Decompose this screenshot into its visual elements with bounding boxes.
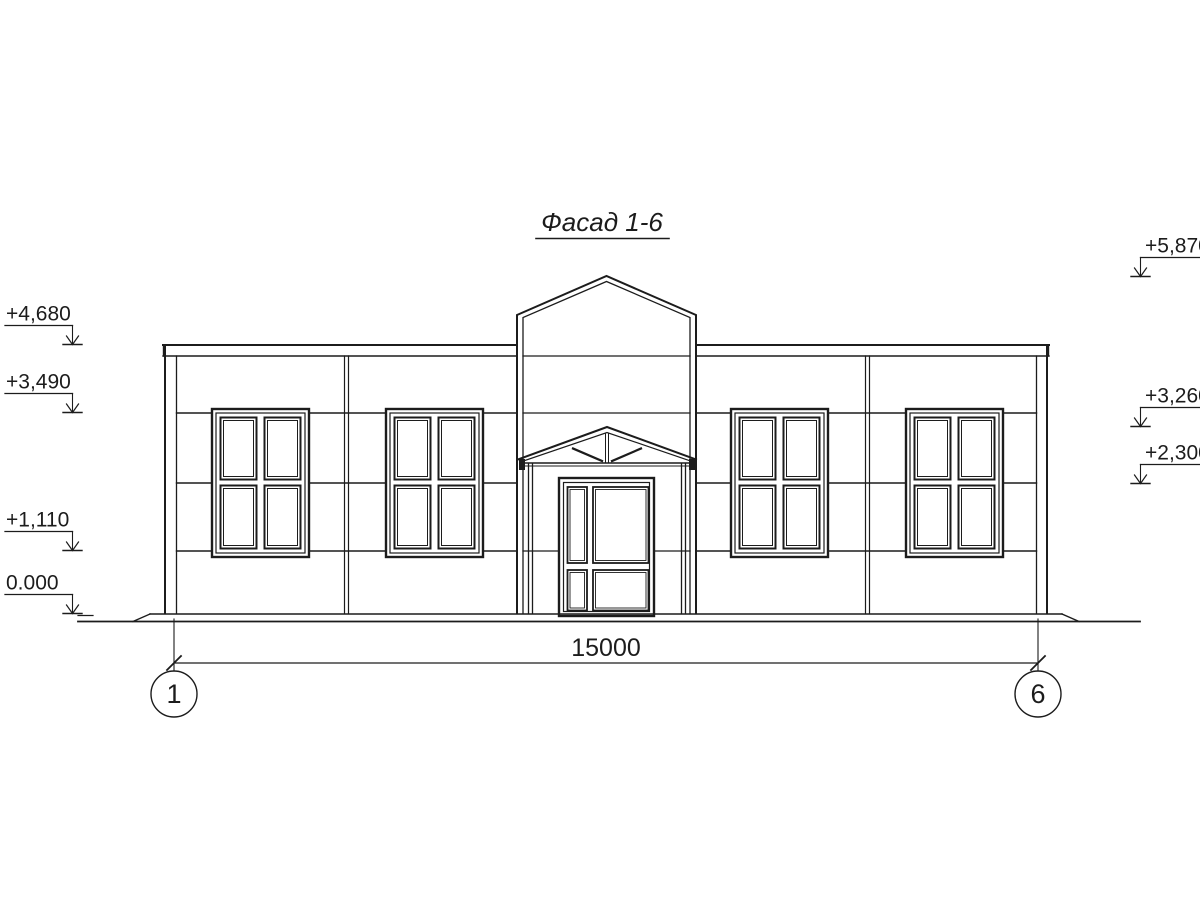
drawing-title: Фасад 1-6 xyxy=(536,207,669,239)
entrance-door xyxy=(558,477,655,617)
elevation-value: +1,110 xyxy=(6,509,69,532)
elevation-value: 0.000 xyxy=(6,572,59,595)
elevation-value: +2,300 xyxy=(1145,442,1200,465)
axis-6-label: 6 xyxy=(1030,679,1045,709)
window-2 xyxy=(386,409,483,557)
facade-elevation-drawing: Фасад 1-6 xyxy=(0,0,1200,900)
title-text: Фасад 1-6 xyxy=(541,207,663,237)
axis-1-label: 1 xyxy=(166,679,181,709)
window-3 xyxy=(731,409,828,557)
elevation-value: +5,870 xyxy=(1145,235,1200,258)
elevation-value: +3,490 xyxy=(6,371,71,394)
window-4 xyxy=(906,409,1003,557)
dimension-value: 15000 xyxy=(571,634,641,662)
elevation-value: +4,680 xyxy=(6,303,71,326)
elevation-value: +3,260 xyxy=(1145,385,1200,408)
window-1 xyxy=(212,409,309,557)
